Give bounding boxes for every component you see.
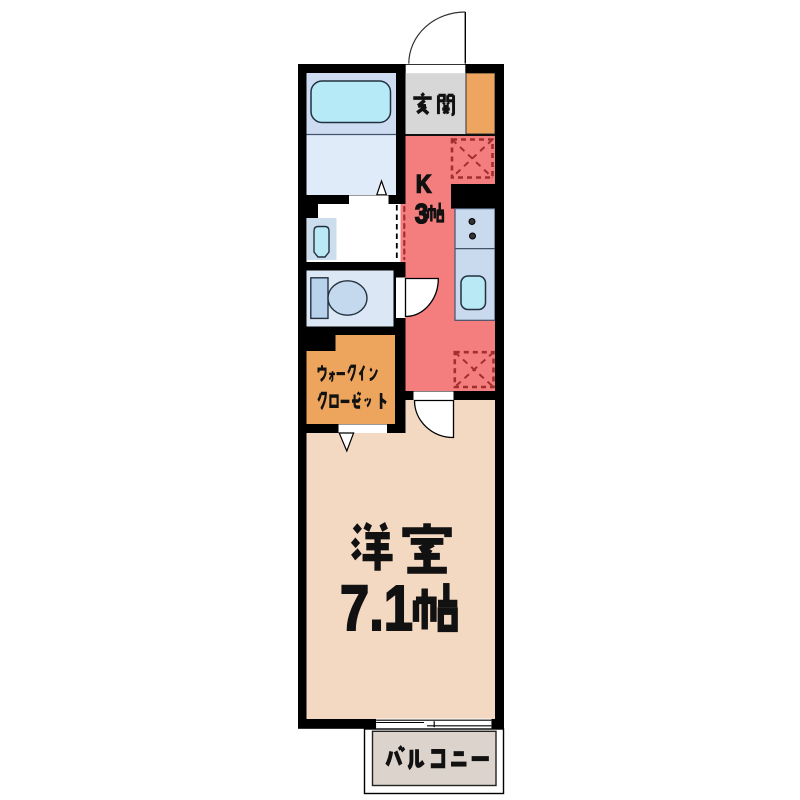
- svg-text:K: K: [416, 170, 432, 198]
- svg-text:3: 3: [415, 197, 428, 229]
- svg-text:7.1: 7.1: [340, 572, 413, 644]
